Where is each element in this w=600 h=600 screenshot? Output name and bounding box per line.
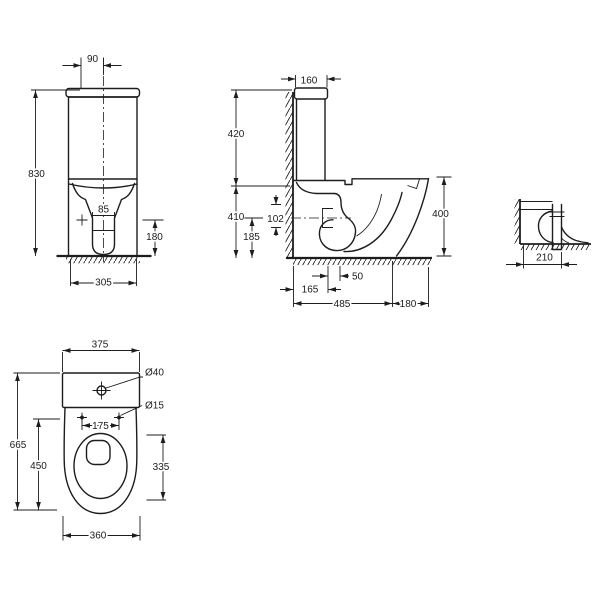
front-view: 90 830 85 180 305 xyxy=(28,54,163,289)
side-cistern-lid xyxy=(295,88,328,99)
side-floor-hatch xyxy=(293,259,431,266)
side-view: 160 420 410 102 185 xyxy=(228,75,452,310)
dimension-plan-seat-opening-length: 335 xyxy=(147,435,170,500)
dimension-side-wall-to-base-front: 485 xyxy=(294,299,393,310)
dim-front-inlet-offset: 90 xyxy=(87,54,99,65)
dim-side-cistern-depth: 160 xyxy=(301,76,318,87)
dim-side-wall-to-base-front: 485 xyxy=(334,299,351,310)
detail-floor-hatch xyxy=(520,245,591,251)
dimension-front-outlet-height: 180 xyxy=(143,220,164,256)
label-plan-fixing-hole-diameter: Ø15 xyxy=(145,401,164,412)
plan-bowl-opening xyxy=(87,441,111,465)
plan-seat-ring xyxy=(74,434,127,499)
dim-front-trapway-width: 85 xyxy=(98,205,110,216)
dim-side-seat-height: 410 xyxy=(228,212,245,223)
dim-detail-wall-to-trap: 210 xyxy=(536,253,553,264)
plan-inlet-leader-line xyxy=(105,377,144,389)
dimension-side-seat-height: 410 xyxy=(228,186,245,258)
front-cistern-body xyxy=(69,97,138,179)
plan-inlet-hole-mark xyxy=(93,382,111,400)
dimension-side-outlet-setback: 50 xyxy=(312,272,363,283)
front-ground-hatch xyxy=(66,257,140,264)
side-bowl-interior xyxy=(297,183,403,252)
dimension-plan-base-width: 360 xyxy=(63,516,140,542)
dim-side-outlet-center-height: 185 xyxy=(243,232,260,243)
dim-plan-cistern-width: 375 xyxy=(92,340,109,351)
dim-plan-hole-spacing: 175 xyxy=(92,421,109,432)
drawing-canvas: 90 830 85 180 305 xyxy=(0,0,600,600)
dimension-side-outlet-center-height: 185 xyxy=(243,218,260,258)
side-seat-line xyxy=(293,179,429,185)
dimension-side-wall-to-outlet: 165 xyxy=(280,285,341,296)
label-plan-inlet-hole-diameter: Ø40 xyxy=(145,368,164,379)
dim-side-base-overhang: 180 xyxy=(400,299,417,310)
dim-plan-seat-opening-length: 335 xyxy=(153,462,170,473)
dimension-front-overall-height: 830 xyxy=(28,90,80,256)
technical-drawing: 90 830 85 180 305 xyxy=(0,0,600,600)
dimension-front-inlet-offset: 90 xyxy=(63,54,122,89)
dimension-side-outlet-offset: 102 xyxy=(248,195,284,236)
dimension-side-cistern-top-height: 420 xyxy=(228,90,292,186)
plan-view: 375 Ø40 Ø15 175 665 xyxy=(10,340,170,542)
outlet-detail-view: 210 xyxy=(506,199,591,269)
dim-plan-bowl-length: 450 xyxy=(30,461,47,472)
dimension-front-base-width: 305 xyxy=(71,259,137,289)
detail-inlet-pipe xyxy=(520,202,553,210)
dim-side-front-height: 400 xyxy=(432,209,449,220)
dimension-plan-cistern-width: 375 xyxy=(63,340,140,373)
front-drain-cross-mark xyxy=(77,215,88,226)
dimension-side-front-height: 400 xyxy=(432,177,451,256)
front-bowl-interior xyxy=(69,184,137,255)
dim-front-overall-height: 830 xyxy=(28,169,45,180)
dimension-side-base-overhang: 180 xyxy=(393,299,429,310)
dimension-plan-bowl-length: 450 xyxy=(30,419,60,510)
dim-front-base-width: 305 xyxy=(95,278,112,289)
dim-side-outlet-offset: 102 xyxy=(267,214,284,225)
dim-side-cistern-top-height: 420 xyxy=(228,129,245,140)
detail-trap-pipe xyxy=(538,205,588,250)
dim-side-outlet-setback: 50 xyxy=(352,272,364,283)
side-wall-hatch xyxy=(286,92,294,258)
dimension-plan-overall-length: 665 xyxy=(10,373,60,510)
side-bowl-front xyxy=(397,179,429,256)
dimension-plan-hole-spacing: 175 xyxy=(82,421,119,432)
dim-plan-overall-length: 665 xyxy=(10,440,27,451)
side-cistern-body xyxy=(297,99,326,180)
dim-side-wall-to-outlet: 165 xyxy=(302,285,319,296)
dim-plan-base-width: 360 xyxy=(90,531,107,542)
dim-front-outlet-height: 180 xyxy=(146,232,163,243)
side-seat-notch xyxy=(408,179,420,189)
dimension-side-cistern-depth: 160 xyxy=(281,75,341,88)
front-pedestal xyxy=(69,179,138,256)
